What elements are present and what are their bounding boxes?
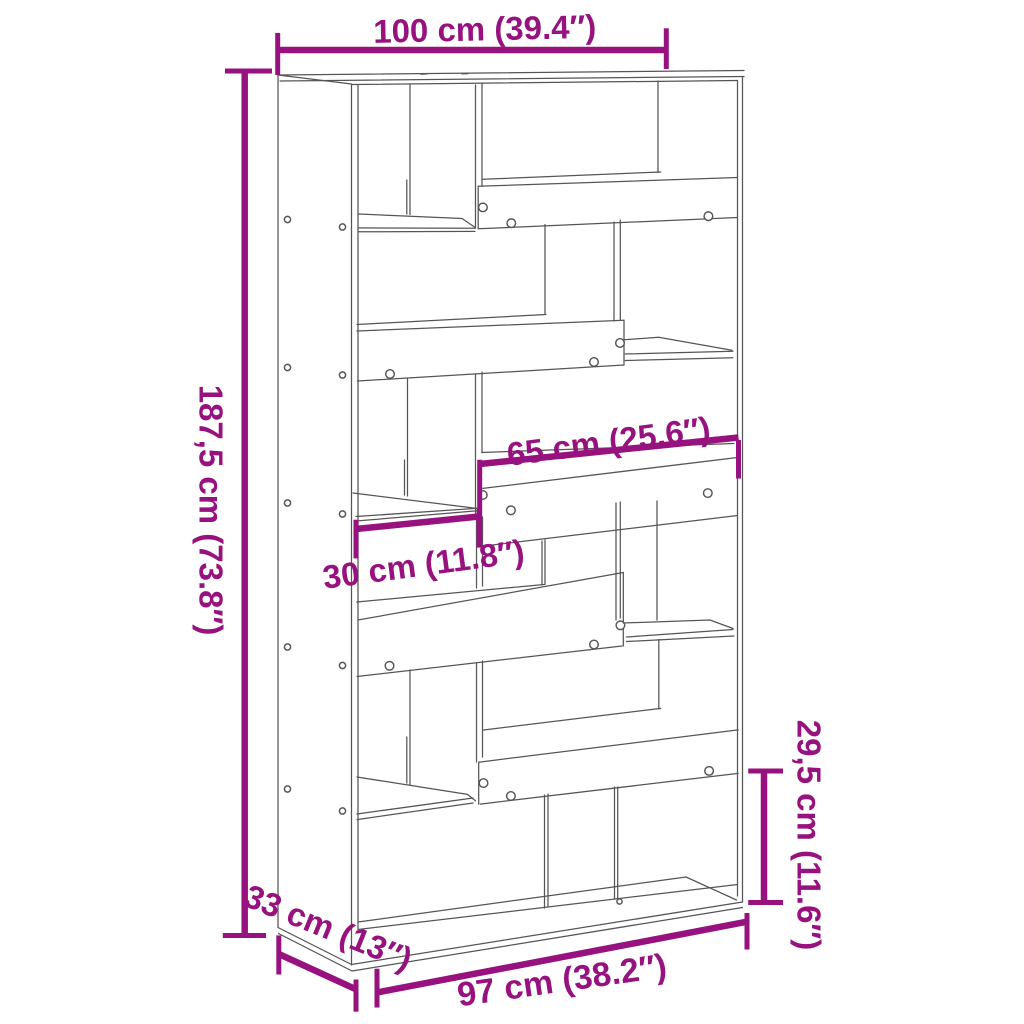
svg-text:187,5 cm (73.8″): 187,5 cm (73.8″) [193, 385, 230, 636]
svg-text:65 cm (25.6″): 65 cm (25.6″) [505, 409, 713, 472]
svg-text:29,5 cm (11.6″): 29,5 cm (11.6″) [790, 720, 827, 950]
svg-text:100 cm (39.4″): 100 cm (39.4″) [373, 8, 597, 50]
svg-text:33 cm (13″): 33 cm (13″) [239, 877, 417, 978]
